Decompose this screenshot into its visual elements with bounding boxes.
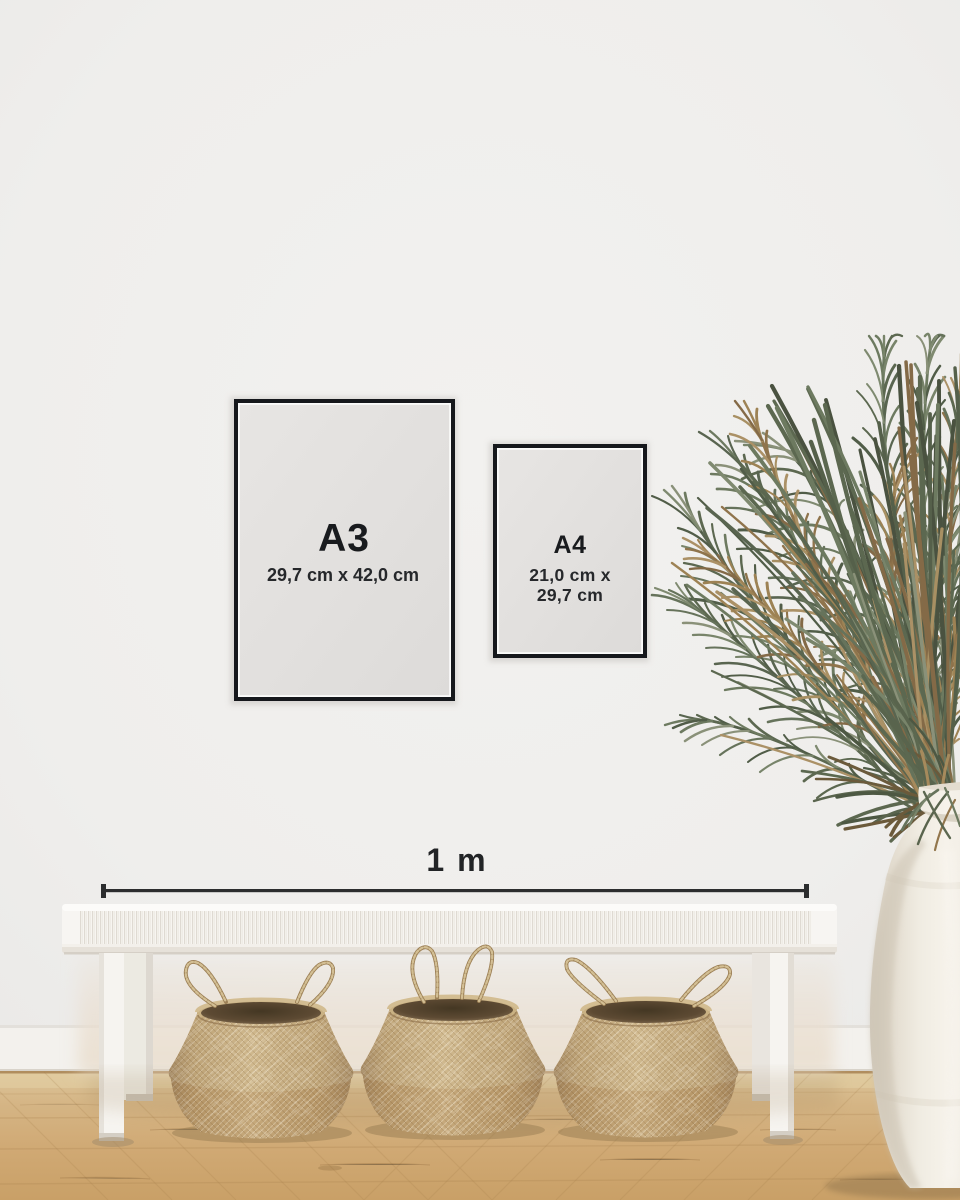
svg-text:A3: A3 — [318, 517, 370, 560]
svg-text:1 m: 1 m — [426, 842, 487, 878]
svg-text:21,0 cm x: 21,0 cm x — [529, 565, 611, 585]
svg-text:29,7 cm x 42,0 cm: 29,7 cm x 42,0 cm — [267, 565, 419, 585]
svg-text:29,7 cm: 29,7 cm — [537, 585, 603, 605]
svg-text:A4: A4 — [554, 531, 587, 559]
